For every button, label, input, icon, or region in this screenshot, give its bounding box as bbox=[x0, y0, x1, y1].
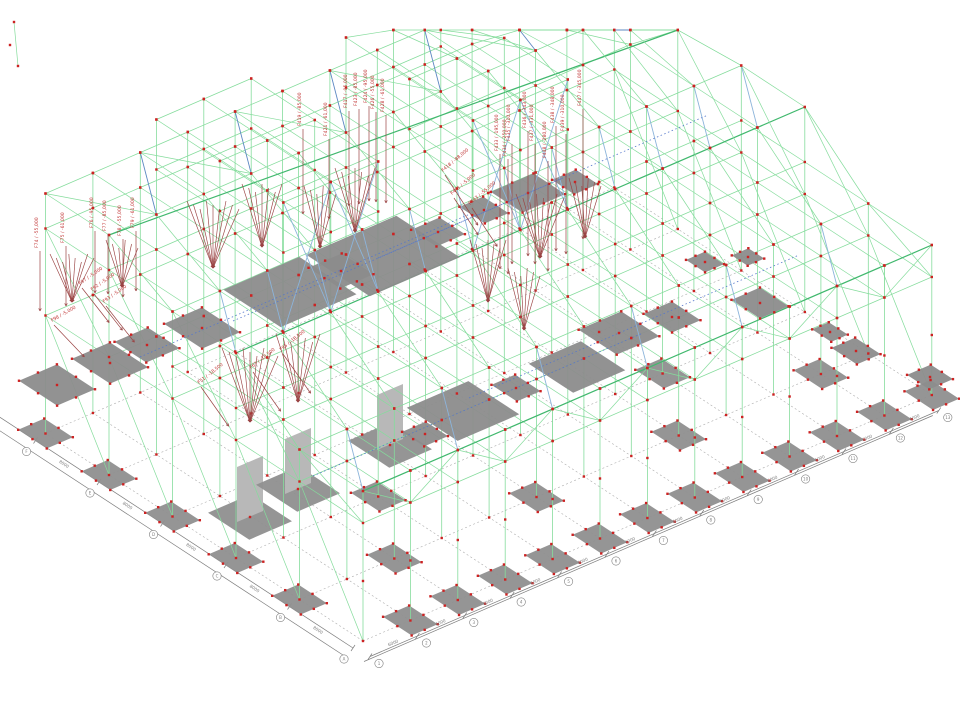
node bbox=[298, 480, 300, 482]
node bbox=[409, 619, 411, 621]
dimension-text-layer: 1600026000360004600056000660007600086000… bbox=[22, 413, 952, 668]
node bbox=[330, 398, 332, 400]
node bbox=[297, 187, 299, 189]
node bbox=[903, 390, 905, 392]
node bbox=[747, 256, 749, 258]
node bbox=[645, 502, 647, 504]
node bbox=[918, 399, 920, 401]
node bbox=[282, 418, 284, 420]
node bbox=[741, 326, 743, 328]
beam bbox=[473, 150, 520, 171]
node bbox=[598, 181, 600, 183]
node bbox=[171, 515, 173, 517]
node bbox=[746, 265, 748, 267]
node bbox=[435, 245, 437, 247]
node bbox=[266, 474, 268, 476]
node bbox=[629, 43, 631, 45]
node bbox=[423, 629, 425, 631]
load-label: F436 / -343,000 bbox=[522, 91, 528, 128]
beam bbox=[774, 224, 821, 245]
beam bbox=[695, 359, 742, 380]
node bbox=[661, 254, 663, 256]
node bbox=[377, 495, 379, 497]
node bbox=[404, 499, 406, 501]
beam bbox=[599, 107, 646, 128]
node bbox=[17, 65, 19, 67]
node bbox=[788, 337, 790, 339]
brace-diagonal bbox=[868, 204, 932, 278]
node bbox=[660, 526, 662, 528]
beam bbox=[283, 106, 330, 127]
node bbox=[528, 395, 530, 397]
beam bbox=[647, 86, 694, 107]
node bbox=[524, 554, 526, 556]
node bbox=[646, 367, 648, 369]
node bbox=[663, 425, 665, 427]
node bbox=[740, 151, 742, 153]
node bbox=[44, 432, 46, 434]
node bbox=[377, 290, 379, 292]
node bbox=[408, 263, 410, 265]
node bbox=[666, 493, 668, 495]
node bbox=[339, 287, 341, 289]
node bbox=[551, 558, 553, 560]
node bbox=[629, 248, 631, 250]
node bbox=[585, 528, 587, 530]
node bbox=[496, 217, 498, 219]
node bbox=[187, 166, 189, 168]
node bbox=[75, 376, 77, 378]
node bbox=[756, 126, 758, 128]
node bbox=[699, 319, 701, 321]
node bbox=[788, 395, 790, 397]
node bbox=[772, 393, 774, 395]
node bbox=[456, 274, 458, 276]
beam bbox=[536, 86, 600, 128]
load-label: F419 / -85,000 bbox=[297, 92, 303, 126]
node bbox=[406, 552, 408, 554]
beam bbox=[140, 167, 187, 188]
grid-bubble-label: A bbox=[343, 657, 346, 662]
node bbox=[693, 290, 695, 292]
dim-line bbox=[364, 416, 933, 662]
load-label: F448 / -280,000 bbox=[542, 121, 548, 158]
node bbox=[804, 161, 806, 163]
node bbox=[239, 331, 241, 333]
node bbox=[314, 249, 316, 251]
beam bbox=[441, 30, 505, 38]
node bbox=[553, 573, 555, 575]
node bbox=[178, 347, 180, 349]
node bbox=[916, 384, 918, 386]
node bbox=[345, 131, 347, 133]
node bbox=[867, 352, 869, 354]
node bbox=[534, 481, 536, 483]
node bbox=[155, 335, 157, 337]
node bbox=[685, 310, 687, 312]
sloped-member bbox=[331, 312, 395, 409]
node bbox=[503, 167, 505, 169]
node bbox=[634, 369, 636, 371]
beam bbox=[346, 30, 393, 38]
node bbox=[539, 390, 541, 392]
node bbox=[297, 152, 299, 154]
node bbox=[9, 44, 11, 46]
node bbox=[109, 489, 111, 491]
node bbox=[424, 325, 426, 327]
node bbox=[681, 502, 683, 504]
node bbox=[282, 386, 284, 388]
node bbox=[713, 257, 715, 259]
node bbox=[692, 444, 694, 446]
node bbox=[551, 440, 553, 442]
node bbox=[440, 212, 442, 214]
node bbox=[519, 229, 521, 231]
node bbox=[372, 273, 374, 275]
node bbox=[139, 273, 141, 275]
node bbox=[171, 397, 173, 399]
node bbox=[329, 104, 331, 106]
beam bbox=[377, 172, 441, 214]
node bbox=[182, 335, 184, 337]
structural-model-canvas[interactable]: F74 / -55,000F75 / -61,000F76 / -95,000F… bbox=[0, 0, 960, 720]
node bbox=[158, 521, 160, 523]
node bbox=[379, 548, 381, 550]
node bbox=[694, 378, 696, 380]
node bbox=[585, 188, 587, 190]
node bbox=[330, 516, 332, 518]
node bbox=[410, 229, 412, 231]
node bbox=[630, 337, 632, 339]
model-viewport[interactable]: F74 / -55,000F75 / -61,000F76 / -95,000F… bbox=[0, 0, 960, 720]
load-label: F424 / -95,000 bbox=[363, 69, 369, 103]
node bbox=[376, 171, 378, 173]
grid-bubble-label: 8 bbox=[710, 518, 713, 523]
node bbox=[563, 500, 565, 502]
node bbox=[282, 251, 284, 253]
node bbox=[282, 201, 284, 203]
node bbox=[847, 377, 849, 379]
load-label: F438 / -348,000 bbox=[550, 86, 556, 123]
node bbox=[282, 331, 284, 333]
beam bbox=[378, 326, 425, 347]
node bbox=[843, 355, 845, 357]
pedestal-wall bbox=[237, 456, 263, 522]
load-arrow bbox=[488, 244, 494, 302]
node bbox=[730, 299, 732, 301]
beam bbox=[741, 153, 805, 195]
node bbox=[345, 371, 347, 373]
node bbox=[408, 604, 410, 606]
beam bbox=[377, 152, 424, 173]
node bbox=[693, 140, 695, 142]
node bbox=[311, 593, 313, 595]
node bbox=[928, 388, 930, 390]
node bbox=[773, 296, 775, 298]
node bbox=[350, 492, 352, 494]
node bbox=[940, 383, 942, 385]
node bbox=[808, 431, 810, 433]
beam bbox=[472, 44, 535, 86]
node bbox=[906, 374, 908, 376]
sloped-member bbox=[520, 230, 584, 327]
node bbox=[472, 169, 474, 171]
grid-bubble-label: 6 bbox=[615, 559, 618, 564]
node bbox=[219, 160, 221, 162]
beam bbox=[568, 265, 632, 307]
node bbox=[457, 599, 459, 601]
node bbox=[330, 181, 332, 183]
node bbox=[59, 442, 61, 444]
beam bbox=[267, 326, 331, 368]
node bbox=[281, 212, 283, 214]
node bbox=[598, 126, 600, 128]
beam bbox=[567, 70, 614, 91]
node bbox=[775, 461, 777, 463]
sloped-member bbox=[663, 169, 727, 266]
load-label: F418 / -88,000 bbox=[440, 147, 470, 173]
node bbox=[284, 589, 286, 591]
node bbox=[514, 373, 516, 375]
node bbox=[203, 433, 205, 435]
node bbox=[619, 513, 621, 515]
node bbox=[173, 530, 175, 532]
node bbox=[566, 567, 568, 569]
node bbox=[583, 475, 585, 477]
beam bbox=[346, 168, 410, 210]
node bbox=[571, 534, 573, 536]
load-label: F79 / -61,000 bbox=[130, 197, 136, 228]
node bbox=[472, 454, 474, 456]
node bbox=[883, 354, 885, 356]
node bbox=[219, 345, 221, 347]
node bbox=[187, 131, 189, 133]
beam bbox=[204, 209, 251, 230]
node bbox=[819, 325, 821, 327]
node bbox=[424, 475, 426, 477]
node bbox=[632, 507, 634, 509]
node bbox=[772, 243, 774, 245]
node bbox=[740, 461, 742, 463]
node bbox=[671, 316, 673, 318]
node bbox=[693, 85, 695, 87]
beam bbox=[567, 90, 631, 132]
node bbox=[709, 234, 711, 236]
node bbox=[614, 393, 616, 395]
node bbox=[248, 551, 250, 553]
node bbox=[444, 604, 446, 606]
node bbox=[266, 324, 268, 326]
beam bbox=[710, 215, 757, 236]
node bbox=[382, 616, 384, 618]
node bbox=[170, 500, 172, 502]
brace-diagonal bbox=[614, 30, 678, 111]
beam bbox=[805, 194, 869, 236]
node bbox=[221, 547, 223, 549]
node bbox=[440, 330, 442, 332]
node bbox=[567, 263, 569, 265]
node bbox=[674, 367, 676, 369]
node bbox=[761, 452, 763, 454]
load-arrow bbox=[508, 268, 524, 330]
node bbox=[250, 172, 252, 174]
node bbox=[298, 598, 300, 600]
dim-tick bbox=[351, 645, 355, 651]
node bbox=[44, 192, 46, 194]
node bbox=[362, 580, 364, 582]
node bbox=[80, 470, 82, 472]
beam bbox=[140, 275, 204, 317]
node bbox=[121, 468, 123, 470]
load-label: F78 / -55,000 bbox=[117, 205, 123, 236]
node bbox=[503, 37, 505, 39]
node bbox=[297, 583, 299, 585]
node bbox=[457, 539, 459, 541]
node bbox=[220, 339, 222, 341]
node bbox=[392, 146, 394, 148]
node bbox=[163, 323, 165, 325]
node bbox=[44, 314, 46, 316]
node bbox=[128, 374, 130, 376]
node bbox=[440, 29, 442, 31]
node bbox=[694, 496, 696, 498]
node bbox=[487, 310, 489, 312]
beam bbox=[235, 147, 299, 189]
node bbox=[262, 561, 264, 563]
node bbox=[917, 381, 919, 383]
node bbox=[548, 490, 550, 492]
node bbox=[408, 78, 410, 80]
node bbox=[56, 404, 58, 406]
node bbox=[705, 438, 707, 440]
grid-bubble-label: 10 bbox=[803, 477, 809, 482]
node bbox=[108, 356, 110, 358]
load-label: F67 / -18,500 bbox=[249, 347, 277, 371]
node bbox=[135, 478, 137, 480]
node bbox=[679, 487, 681, 489]
node bbox=[755, 261, 757, 263]
node bbox=[413, 426, 415, 428]
node bbox=[879, 353, 881, 355]
node bbox=[366, 554, 368, 556]
node bbox=[330, 311, 332, 313]
node bbox=[629, 29, 631, 31]
node bbox=[804, 311, 806, 313]
node bbox=[725, 414, 727, 416]
node bbox=[756, 181, 758, 183]
node bbox=[147, 326, 149, 328]
node bbox=[447, 435, 449, 437]
node bbox=[856, 411, 858, 413]
node bbox=[850, 444, 852, 446]
dimension-text: 8000 bbox=[185, 542, 197, 552]
node bbox=[679, 449, 681, 451]
beam bbox=[457, 88, 504, 109]
node bbox=[657, 306, 659, 308]
beam bbox=[536, 30, 583, 51]
node bbox=[535, 496, 537, 498]
node bbox=[456, 107, 458, 109]
beam bbox=[567, 30, 631, 45]
node bbox=[842, 342, 844, 344]
node bbox=[235, 352, 237, 354]
node bbox=[412, 438, 414, 440]
node bbox=[472, 304, 474, 306]
load-arrow bbox=[262, 192, 275, 247]
load-label: F423 / -85,000 bbox=[353, 72, 359, 106]
node bbox=[567, 413, 569, 415]
node bbox=[235, 557, 237, 559]
node bbox=[487, 70, 489, 72]
node bbox=[219, 377, 221, 379]
node bbox=[582, 29, 584, 31]
node bbox=[551, 498, 553, 500]
node bbox=[504, 460, 506, 462]
beam bbox=[283, 388, 347, 430]
node bbox=[314, 336, 316, 338]
node bbox=[435, 440, 437, 442]
node bbox=[187, 371, 189, 373]
node bbox=[630, 455, 632, 457]
node bbox=[30, 423, 32, 425]
load-arrow bbox=[242, 184, 262, 247]
node bbox=[155, 168, 157, 170]
node bbox=[380, 563, 382, 565]
dimension-text: 8000 bbox=[312, 625, 324, 635]
node bbox=[470, 593, 472, 595]
load-label: F437 / -331,000 bbox=[529, 104, 535, 141]
node bbox=[503, 254, 505, 256]
node bbox=[567, 295, 569, 297]
node bbox=[820, 223, 822, 225]
node bbox=[836, 285, 838, 287]
node bbox=[109, 382, 111, 384]
dimension-text: 8000 bbox=[249, 583, 261, 593]
sloped-member bbox=[615, 189, 679, 286]
node bbox=[678, 434, 680, 436]
beam bbox=[315, 305, 379, 347]
sloped-member bbox=[473, 251, 537, 348]
beam bbox=[630, 45, 694, 87]
dimension-text: 6000 bbox=[766, 474, 778, 483]
brace-diagonal bbox=[614, 70, 678, 230]
node bbox=[678, 316, 680, 318]
load-arrow bbox=[201, 387, 229, 426]
node bbox=[424, 270, 426, 272]
beam bbox=[505, 441, 552, 462]
brace-diagonal bbox=[173, 399, 237, 559]
node bbox=[534, 49, 536, 51]
beam bbox=[220, 161, 284, 203]
node bbox=[932, 409, 934, 411]
beam bbox=[299, 168, 346, 189]
node bbox=[714, 472, 716, 474]
node bbox=[491, 584, 493, 586]
node bbox=[741, 476, 743, 478]
dimension-text: 6000 bbox=[672, 515, 684, 524]
node bbox=[122, 483, 124, 485]
node bbox=[408, 128, 410, 130]
load-arrow bbox=[283, 354, 311, 393]
node bbox=[598, 331, 600, 333]
node bbox=[763, 257, 765, 259]
node bbox=[508, 492, 510, 494]
node bbox=[599, 537, 601, 539]
node bbox=[393, 439, 395, 441]
node bbox=[548, 183, 550, 185]
node bbox=[162, 337, 164, 339]
beam bbox=[694, 66, 741, 87]
